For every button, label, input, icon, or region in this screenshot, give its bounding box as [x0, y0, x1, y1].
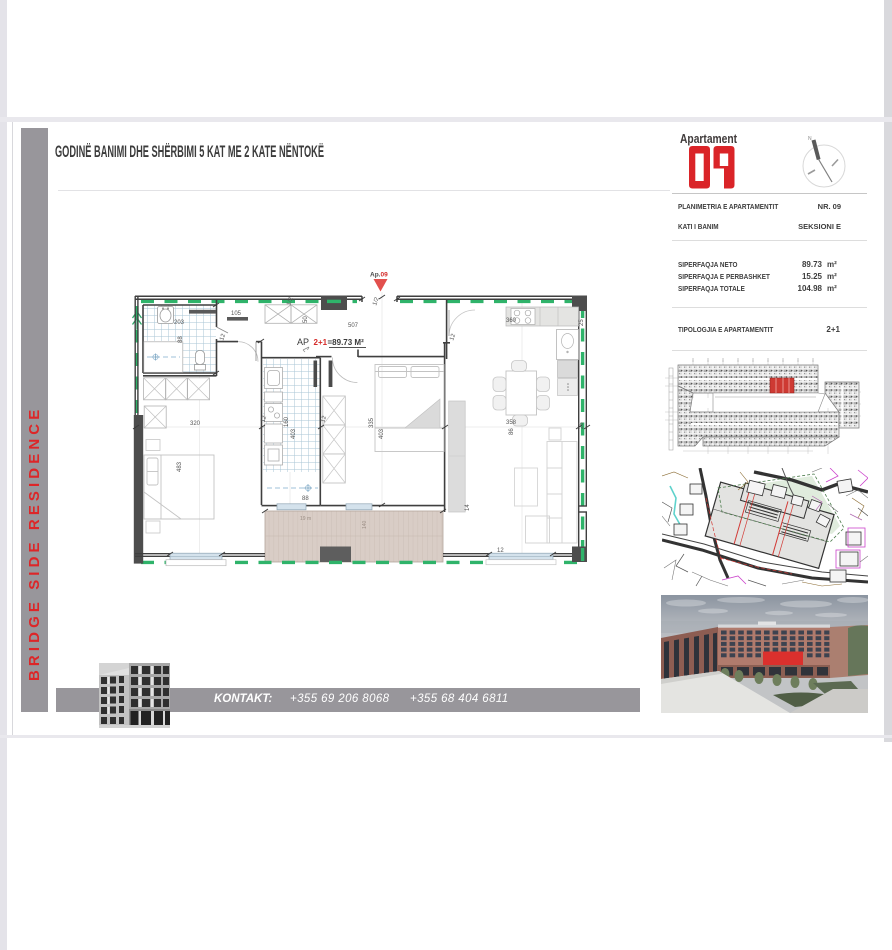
- svg-text:=89.73 M²: =89.73 M²: [328, 338, 365, 347]
- svg-text:19 m: 19 m: [300, 516, 311, 522]
- svg-text:12: 12: [219, 333, 227, 342]
- svg-text:335: 335: [369, 417, 375, 428]
- svg-text:2+1: 2+1: [314, 338, 328, 347]
- svg-text:12: 12: [497, 548, 504, 554]
- svg-text:140: 140: [362, 520, 368, 529]
- svg-text:320: 320: [190, 421, 201, 427]
- svg-text:50: 50: [303, 316, 309, 323]
- svg-text:160: 160: [284, 416, 290, 427]
- svg-text:1/2: 1/2: [372, 296, 381, 307]
- svg-text:25: 25: [579, 319, 585, 326]
- svg-text:88: 88: [302, 496, 309, 502]
- svg-text:403: 403: [291, 428, 297, 439]
- svg-text:360: 360: [506, 318, 517, 324]
- svg-text:507: 507: [348, 323, 359, 329]
- svg-text:203: 203: [174, 320, 185, 326]
- svg-text:86: 86: [509, 428, 515, 435]
- svg-text:403: 403: [379, 428, 385, 439]
- svg-text:14: 14: [465, 504, 471, 511]
- svg-text:105: 105: [231, 311, 242, 317]
- svg-text:358: 358: [506, 420, 517, 426]
- svg-text:12: 12: [449, 333, 457, 342]
- svg-text:88: 88: [178, 336, 184, 343]
- svg-text:483: 483: [177, 461, 183, 472]
- svg-text:Ap.09: Ap.09: [370, 272, 388, 279]
- svg-text:N: N: [808, 136, 812, 142]
- svg-text:AP: AP: [297, 337, 309, 347]
